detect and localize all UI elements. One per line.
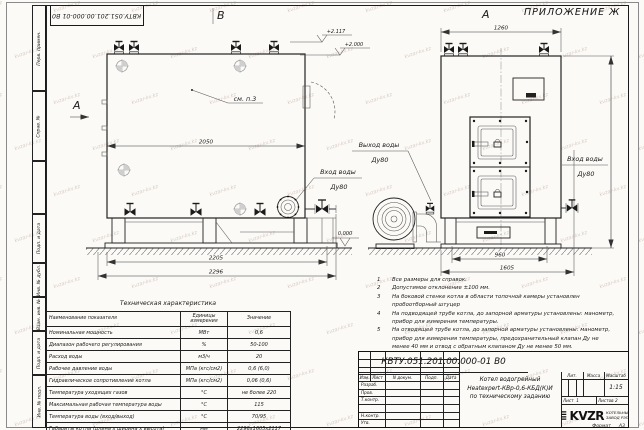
view-label-a-front: А xyxy=(481,8,490,21)
tech-cell: °С xyxy=(181,411,228,423)
fan-blower: Выход воды Ду80 xyxy=(352,141,441,249)
tb-col-izm: Изм. xyxy=(359,374,370,381)
note-text: На отводящей трубе котла, до запорной ар… xyxy=(392,326,616,351)
tech-cell: м3/ч xyxy=(181,351,228,363)
tech-cell: 50-100 xyxy=(228,339,291,351)
inlet-front-label: Вход воды Ду80 xyxy=(562,155,608,178)
note-number: 2 xyxy=(374,284,392,292)
tech-cell: Гидравлическое сопротивление котла xyxy=(47,375,181,387)
tech-cell: МПа (кгс/см2) xyxy=(181,363,228,375)
pipe-dn-label: Ду80 xyxy=(577,170,595,178)
tech-cell: 2296х1605х2117 xyxy=(228,423,291,430)
side-base-frame xyxy=(105,218,337,248)
door-swing-arc xyxy=(311,82,335,119)
note-number: 3 xyxy=(374,293,392,310)
tb-row-tkontr: Т.контр. xyxy=(361,397,385,402)
elevation-top: +2.117 xyxy=(290,29,352,42)
tb-row-nkontr: Н.контр. xyxy=(361,413,385,418)
dim-text: 2205 xyxy=(209,256,224,262)
tech-cell: 0,6 (6,0) xyxy=(228,363,291,375)
note-text: Все размеры для справок. xyxy=(392,276,616,284)
note-number: 1 xyxy=(374,276,392,284)
note-item: 2Допустимое отклонение ±100 мм. xyxy=(374,284,616,292)
tb-sheet-label: Лист xyxy=(563,398,574,403)
pipe-label: Вход воды xyxy=(320,168,356,176)
tech-row: Максимальная рабочая температура воды°С1… xyxy=(47,399,291,411)
inlet-flange xyxy=(277,196,300,219)
tech-cell: 0,06 (0,6) xyxy=(228,375,291,387)
elevation-mid: +2.000 xyxy=(300,42,370,55)
tech-cell: % xyxy=(181,339,228,351)
furnace-doors xyxy=(470,117,530,217)
ground-hatch-front xyxy=(368,249,592,256)
tech-row: Температура воды (вход/выход)°С70/95 xyxy=(47,411,291,423)
tb-col-list: Лист xyxy=(370,374,385,381)
drawing-sheet: kvzar-kv.kzkvzar-kv.kzkvzar-kv.kzkvzar-k… xyxy=(0,0,644,430)
tech-row: Диапазон рабочего регулирования%50-100 xyxy=(47,339,291,351)
tech-cell: мм xyxy=(181,423,228,430)
tb-scale-value: 1:15 xyxy=(604,379,628,396)
view-label-a-side: А xyxy=(72,99,81,112)
format-label: Формат xyxy=(592,424,611,429)
dim-side-total: 2296 xyxy=(98,214,336,280)
company-name-line: ЗАВОД РЭП xyxy=(606,416,628,421)
tb-mass-label: Масса xyxy=(583,372,604,379)
product-name-line: Heatexpert-КВр-0,6-КБД(К)И xyxy=(459,385,561,394)
elevation-text: +2.117 xyxy=(327,29,346,35)
tech-header-cell: Значение xyxy=(228,312,291,327)
elevation-text: 0.000 xyxy=(338,231,352,237)
kvzr-logo-icon: ≣ xyxy=(561,409,568,422)
tech-cell: 70/95 xyxy=(228,411,291,423)
view-label-b: В xyxy=(217,9,225,22)
dim-front-total: 1605 xyxy=(441,150,574,276)
tech-cell: °С xyxy=(181,399,228,411)
dim-side-width: 2050 xyxy=(107,140,305,147)
tech-cell: Габариты котла (длина х ширина х высота) xyxy=(47,423,181,430)
tech-cell: Номинальная мощность xyxy=(47,327,181,339)
pipe-label: Вход воды xyxy=(567,155,603,163)
tb-row-utv: Утв. xyxy=(361,420,385,425)
tech-cell: Рабочее давление воды xyxy=(47,363,181,375)
note-text: Допустимое отклонение ±100 мм. xyxy=(392,284,616,292)
note-number: 4 xyxy=(374,310,392,327)
tb-col-dokum: N докум. xyxy=(385,374,420,381)
tech-cell: 115 xyxy=(228,399,291,411)
note-text: На боковой стенке котла в области топочн… xyxy=(392,293,616,310)
tb-sheets-value: 2 xyxy=(615,398,618,403)
inspection-hatch xyxy=(513,78,544,100)
tech-row: Габариты котла (длина х ширина х высота)… xyxy=(47,423,291,430)
tech-cell: Температура уходящих газов xyxy=(47,387,181,399)
tech-row: Номинальная мощностьМВт0,6 xyxy=(47,327,291,339)
tech-cell: Расход воды xyxy=(47,351,181,363)
tech-header-cell: Единицы измерения xyxy=(181,312,228,327)
dim-text: 960 xyxy=(495,253,506,259)
format-value: А3 xyxy=(619,424,625,429)
door-hinge xyxy=(303,86,310,108)
product-name-line: Котел водогрейный xyxy=(459,376,561,385)
dim-text: 1605 xyxy=(500,266,515,272)
product-name: Котел водогрейный Heatexpert-КВр-0,6-КБД… xyxy=(459,372,561,430)
note-text: На подводящей трубе котла, до запорной а… xyxy=(392,310,616,327)
tb-col-data: Дата xyxy=(443,374,459,381)
note-item: 5На отводящей трубе котла, до запорной а… xyxy=(374,326,616,351)
pipe-label: Выход воды xyxy=(359,141,400,149)
tech-cell: МПа (кгс/см2) xyxy=(181,375,228,387)
kvzr-logo: KVZR xyxy=(570,409,605,423)
note-item: 3На боковой стенке котла в области топоч… xyxy=(374,293,616,310)
tb-lit-label: Лит. xyxy=(561,372,583,379)
tech-cell: Температура воды (вход/выход) xyxy=(47,411,181,423)
tech-row: Гидравлическое сопротивление котлаМПа (к… xyxy=(47,375,291,387)
tech-cell: 20 xyxy=(228,351,291,363)
dim-text: 2296 xyxy=(209,270,224,276)
note-item: 1Все размеры для справок. xyxy=(374,276,616,284)
notes-list: 1Все размеры для справок. 2Допустимое от… xyxy=(374,276,616,351)
side-view: см. п.3 2050 xyxy=(70,8,370,280)
product-name-line: по техническому заданию xyxy=(459,393,561,402)
front-inlet-valve xyxy=(561,200,578,213)
tech-table-title: Техническая характеристика xyxy=(46,300,290,311)
tech-cell: МВт xyxy=(181,327,228,339)
tb-sheet-value: 1 xyxy=(576,398,579,403)
tb-col-podp: Подп. xyxy=(420,374,443,381)
dim-text: 2050 xyxy=(199,140,214,146)
inlet-side-label: Вход воды Ду80 xyxy=(296,168,362,200)
pipe-dn-label: Ду80 xyxy=(371,156,389,164)
tech-row: Рабочее давление водыМПа (кгс/см2)0,6 (6… xyxy=(47,363,291,375)
tb-sheets: Листов 2 xyxy=(598,398,628,403)
tech-cell: Максимальная рабочая температура воды xyxy=(47,399,181,411)
see-note-callout: см. п.3 xyxy=(191,89,263,103)
side-drain-valve xyxy=(305,200,336,214)
tb-sheet: Лист 1 xyxy=(563,398,596,403)
tb-scale-label: Масштаб xyxy=(604,372,628,379)
tech-characteristics-table: Техническая характеристика Наименование … xyxy=(46,300,290,430)
dim-front-height xyxy=(563,56,614,248)
ground-hatch-side xyxy=(86,249,352,256)
tech-row: Температура уходящих газов°Сне более 220 xyxy=(47,387,291,399)
tech-cell: 0,6 xyxy=(228,327,291,339)
outlet-label: Выход воды Ду80 xyxy=(352,141,431,201)
tech-cell: Диапазон рабочего регулирования xyxy=(47,339,181,351)
boiler-body-side xyxy=(107,54,305,218)
tech-row: Расход водым3/ч20 xyxy=(47,351,291,363)
company-name: КОТЕЛЬНЫЙ ЗАВОД РЭП xyxy=(606,411,628,421)
front-view: А 1260 xyxy=(368,8,614,276)
format-note: Формат А3 xyxy=(545,424,625,429)
tech-header-row: Наименование показателя Единицы измерени… xyxy=(47,312,291,327)
tech-cell: не более 220 xyxy=(228,387,291,399)
elevation-text: +2.000 xyxy=(345,42,364,48)
tb-row-prov: Пров. xyxy=(361,390,385,395)
tb-row-razrab: Разраб. xyxy=(361,382,385,387)
note-number: 5 xyxy=(374,326,392,351)
note-item: 4На подводящей трубе котла, до запорной … xyxy=(374,310,616,327)
dim-text: 1260 xyxy=(494,26,509,32)
see-note-label: см. п.3 xyxy=(234,95,257,103)
tech-header-cell: Наименование показателя xyxy=(47,312,181,327)
tech-cell: °С xyxy=(181,387,228,399)
pipe-dn-label: Ду80 xyxy=(330,183,348,191)
title-block: Изм. Лист N докум. Подп. Дата Разраб. Пр… xyxy=(358,351,629,428)
tb-sheets-label: Листов xyxy=(598,398,614,403)
